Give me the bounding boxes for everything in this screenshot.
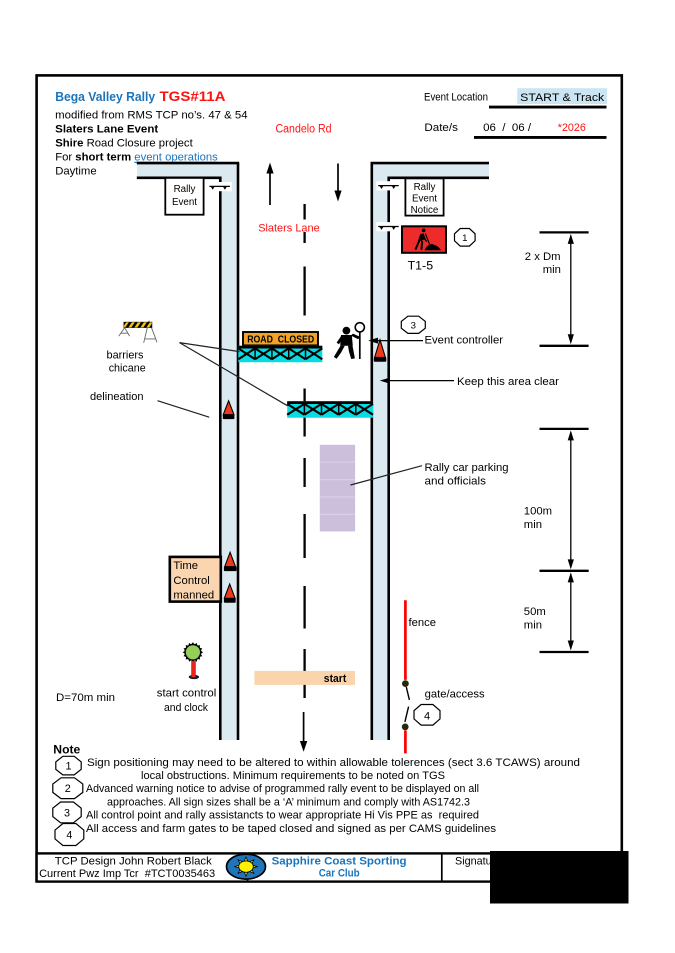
svg-text:Sapphire Coast Sporting: Sapphire Coast Sporting	[272, 855, 407, 867]
svg-text:Event: Event	[172, 197, 197, 208]
svg-text:TCP Design John Robert Black: TCP Design John Robert Black	[55, 855, 213, 867]
svg-text:Current Pwz Imp Tcr #TCT00354: Current Pwz Imp Tcr #TCT0035463	[39, 868, 215, 880]
svg-text:3: 3	[411, 321, 416, 332]
svg-text:Keep this area clear: Keep this area clear	[457, 376, 559, 388]
svg-text:2 x Dm: 2 x Dm	[525, 251, 561, 263]
svg-text:Date/s: Date/s	[424, 122, 458, 134]
svg-text:2: 2	[65, 783, 71, 795]
svg-text:and clock: and clock	[164, 702, 208, 714]
svg-text:local obstructions. Minimum re: local obstructions. Minimum requirements…	[141, 770, 445, 782]
svg-text:4: 4	[424, 710, 430, 722]
svg-text:1: 1	[65, 761, 71, 773]
svg-text:manned: manned	[173, 590, 214, 602]
svg-text:chicane: chicane	[109, 363, 146, 375]
svg-text:START & Track: START & Track	[520, 92, 604, 104]
svg-text:fence: fence	[409, 617, 437, 629]
svg-text:modified from RMS TCP no’s. 47: modified from RMS TCP no’s. 47 & 54	[55, 110, 247, 122]
svg-text:TGS#11A: TGS#11A	[160, 89, 226, 104]
svg-text:3: 3	[64, 807, 70, 819]
svg-text:T1-5: T1-5	[408, 261, 434, 273]
svg-text:delineation: delineation	[90, 391, 144, 403]
svg-text:Candelo Rd: Candelo Rd	[276, 124, 332, 136]
svg-text:start control: start control	[157, 688, 217, 700]
svg-text:*2026: *2026	[558, 122, 586, 134]
svg-text:approaches. All sign sizes sha: approaches. All sign sizes shall be a ‘A…	[107, 796, 470, 808]
svg-text:Control: Control	[173, 575, 209, 587]
svg-text:1: 1	[462, 233, 467, 244]
svg-text:min: min	[524, 519, 542, 531]
svg-text:Event Location: Event Location	[424, 92, 488, 104]
svg-text:gate/access: gate/access	[425, 688, 485, 700]
svg-text:50m: 50m	[524, 606, 546, 618]
svg-text:Time: Time	[173, 560, 198, 572]
svg-text:Shire Road Closure project: Shire Road Closure project	[55, 138, 193, 150]
svg-text:All control point and rally as: All control point and rally assistancts …	[86, 810, 479, 822]
svg-text:06 / 06 /: 06 / 06 /	[483, 122, 532, 134]
svg-text:All access and farm gates to b: All access and farm gates to be taped cl…	[86, 823, 497, 835]
svg-text:barriers: barriers	[107, 349, 144, 361]
svg-text:4: 4	[66, 830, 72, 842]
svg-text:Rally car parking: Rally car parking	[425, 462, 509, 474]
svg-text:Slaters Lane: Slaters Lane	[258, 222, 320, 234]
svg-text:start: start	[324, 673, 347, 685]
svg-text:Rally: Rally	[174, 184, 196, 195]
svg-text:Bega Valley Rally: Bega Valley Rally	[55, 89, 156, 104]
svg-text:Sign positioning may need to b: Sign positioning may need to be altered …	[87, 757, 580, 769]
svg-text:Car Club: Car Club	[319, 868, 360, 880]
svg-text:Event controller: Event controller	[425, 334, 504, 346]
svg-text:Daytime: Daytime	[55, 166, 96, 178]
svg-text:100m: 100m	[524, 506, 552, 518]
svg-text:and officials: and officials	[425, 475, 487, 487]
svg-text:D=70m min: D=70m min	[56, 692, 115, 704]
svg-text:min: min	[543, 264, 561, 276]
svg-text:Event: Event	[412, 193, 437, 204]
svg-text:ROAD CLOSED: ROAD CLOSED	[247, 335, 314, 346]
svg-text:min: min	[524, 619, 542, 631]
svg-text:Slaters Lane Event: Slaters Lane Event	[55, 124, 158, 136]
svg-text:Notice: Notice	[411, 205, 439, 216]
svg-text:Rally: Rally	[414, 182, 436, 193]
svg-text:Advanced warning notice to adv: Advanced warning notice to advise of pro…	[86, 783, 479, 795]
svg-text:Note: Note	[53, 745, 80, 757]
